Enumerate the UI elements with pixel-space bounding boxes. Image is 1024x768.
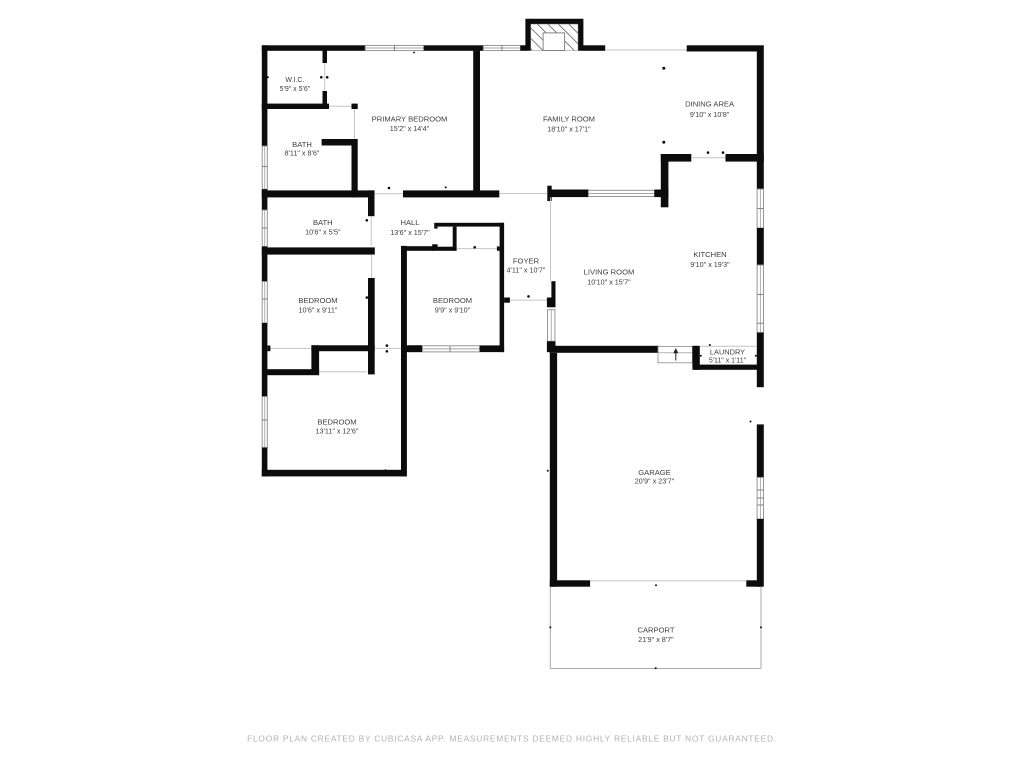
svg-text:9'9" x 9'10": 9'9" x 9'10" bbox=[435, 305, 471, 314]
svg-text:9'10" x 19'3": 9'10" x 19'3" bbox=[690, 260, 730, 269]
svg-text:10'6" x 9'11": 10'6" x 9'11" bbox=[299, 305, 338, 314]
svg-text:FOYER: FOYER bbox=[513, 257, 540, 266]
svg-text:10'10" x 15'7": 10'10" x 15'7" bbox=[587, 277, 631, 286]
svg-text:KITCHEN: KITCHEN bbox=[693, 250, 726, 259]
svg-text:FAMILY ROOM: FAMILY ROOM bbox=[543, 115, 595, 124]
svg-text:BEDROOM: BEDROOM bbox=[433, 296, 472, 305]
svg-text:BEDROOM: BEDROOM bbox=[317, 417, 356, 426]
svg-text:10'6" x 5'5": 10'6" x 5'5" bbox=[305, 228, 341, 237]
svg-text:CARPORT: CARPORT bbox=[638, 626, 675, 635]
svg-text:5'9" x 5'6": 5'9" x 5'6" bbox=[280, 86, 311, 93]
svg-text:DINING AREA: DINING AREA bbox=[685, 100, 735, 109]
svg-text:LIVING ROOM: LIVING ROOM bbox=[584, 267, 635, 276]
svg-text:5'11" x 1'11": 5'11" x 1'11" bbox=[709, 358, 747, 365]
svg-text:9'10" x 10'8": 9'10" x 10'8" bbox=[690, 110, 730, 119]
svg-text:21'9" x 8'7": 21'9" x 8'7" bbox=[638, 635, 674, 644]
svg-text:GARAGE: GARAGE bbox=[638, 468, 671, 477]
svg-text:LAUNDRY: LAUNDRY bbox=[710, 347, 745, 356]
svg-text:W.I.C.: W.I.C. bbox=[285, 77, 304, 84]
svg-text:BATH: BATH bbox=[313, 218, 333, 227]
svg-text:20'9" x 23'7": 20'9" x 23'7" bbox=[635, 477, 675, 486]
svg-text:PRIMARY BEDROOM: PRIMARY BEDROOM bbox=[372, 114, 448, 123]
svg-text:18'10" x 17'1": 18'10" x 17'1" bbox=[547, 124, 591, 133]
svg-text:15'2" x 14'4": 15'2" x 14'4" bbox=[390, 124, 430, 133]
svg-text:13'11" x 12'6": 13'11" x 12'6" bbox=[316, 427, 359, 436]
svg-text:13'6" x 15'7": 13'6" x 15'7" bbox=[390, 228, 430, 237]
svg-text:HALL: HALL bbox=[401, 218, 420, 227]
svg-text:BEDROOM: BEDROOM bbox=[298, 296, 337, 305]
svg-text:4'11" x 10'7": 4'11" x 10'7" bbox=[507, 266, 546, 275]
svg-text:FLOOR PLAN CREATED BY CUBICASA: FLOOR PLAN CREATED BY CUBICASA APP. MEAS… bbox=[247, 734, 777, 744]
svg-text:8'11" x 8'6": 8'11" x 8'6" bbox=[285, 149, 320, 158]
